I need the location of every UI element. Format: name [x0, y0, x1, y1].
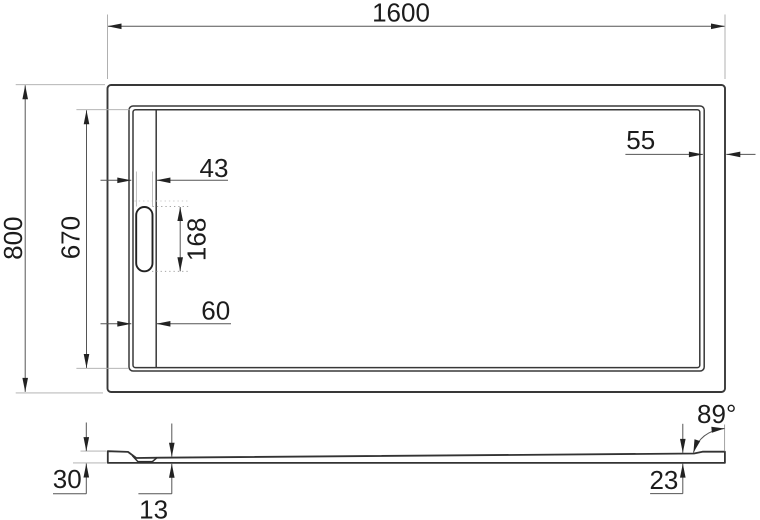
svg-text:23: 23: [649, 465, 678, 495]
svg-text:800: 800: [0, 217, 28, 260]
svg-text:168: 168: [181, 218, 211, 261]
svg-text:13: 13: [139, 494, 168, 520]
svg-text:89°: 89°: [697, 399, 736, 429]
svg-text:43: 43: [200, 153, 229, 183]
svg-text:30: 30: [53, 464, 82, 494]
svg-text:670: 670: [56, 216, 86, 259]
svg-text:1600: 1600: [372, 0, 430, 28]
svg-text:55: 55: [626, 125, 655, 155]
svg-text:60: 60: [201, 295, 230, 325]
